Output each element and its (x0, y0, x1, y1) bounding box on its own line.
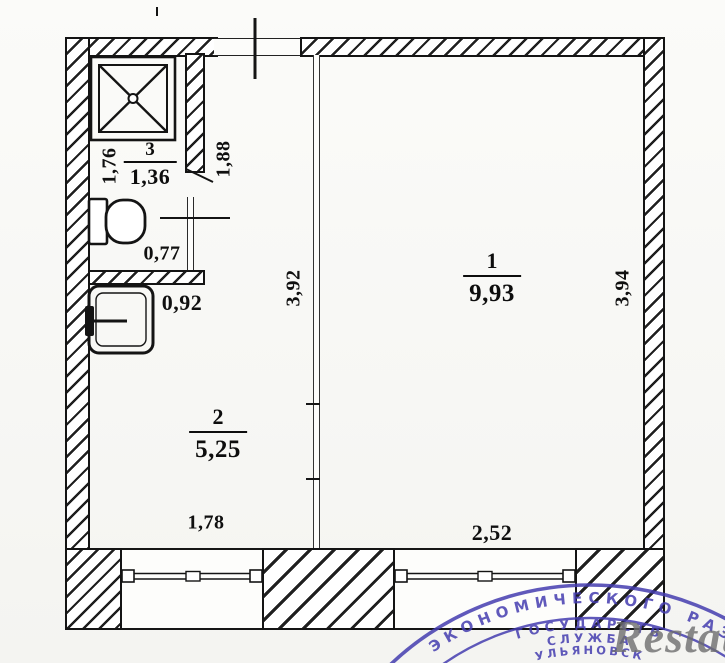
official-stamp: ЭКОНОМИЧЕСКОГО РАЗВ ГОСУДАРСТВ СЛУЖБА УЛ… (0, 0, 725, 663)
floor-plan-scan: 3 1,36 2 5,25 1 9,93 1,76 1,88 0,77 0,92… (0, 0, 725, 663)
restate-watermark: Restate (612, 610, 725, 663)
